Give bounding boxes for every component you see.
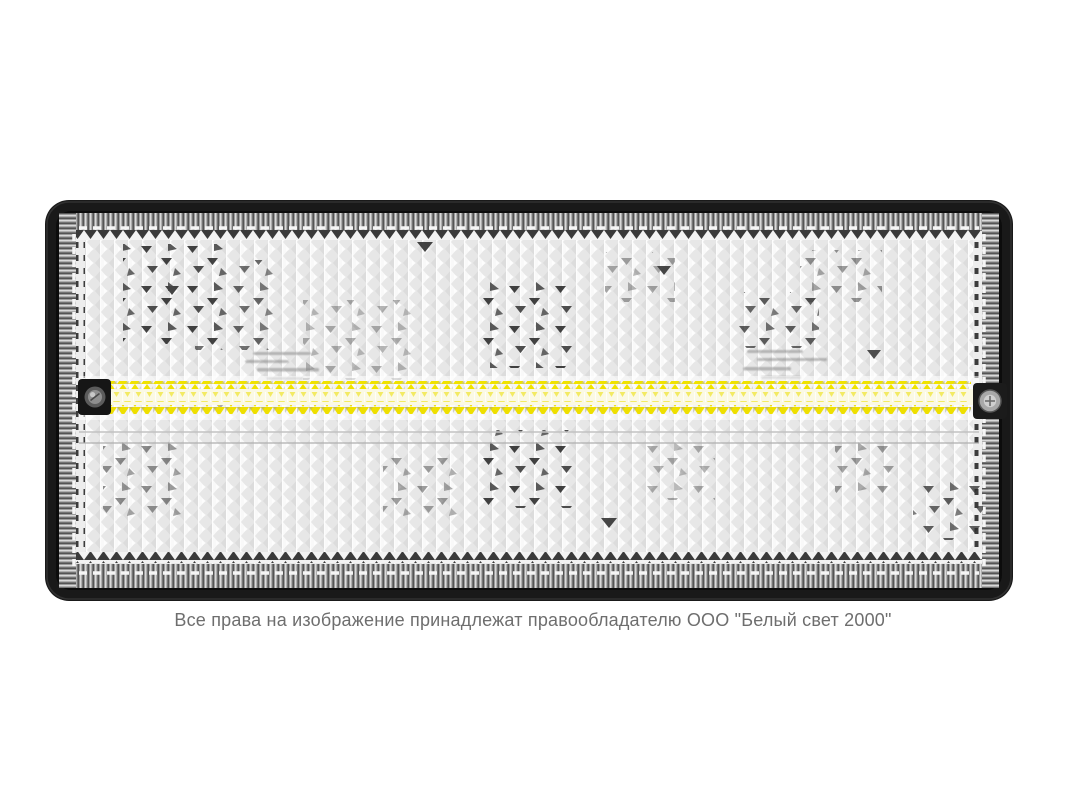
luminaire-image <box>45 200 1013 601</box>
diffuser <box>76 230 983 564</box>
right-screw <box>973 383 1007 419</box>
product-photo <box>45 200 1013 601</box>
page: Все права на изображение принадлежат пра… <box>0 0 1066 800</box>
copyright-caption: Все права на изображение принадлежат пра… <box>0 610 1066 631</box>
left-screw <box>78 379 111 415</box>
led-row-top <box>89 381 971 389</box>
led-strip <box>79 376 979 420</box>
led-row-bottom <box>89 405 971 414</box>
